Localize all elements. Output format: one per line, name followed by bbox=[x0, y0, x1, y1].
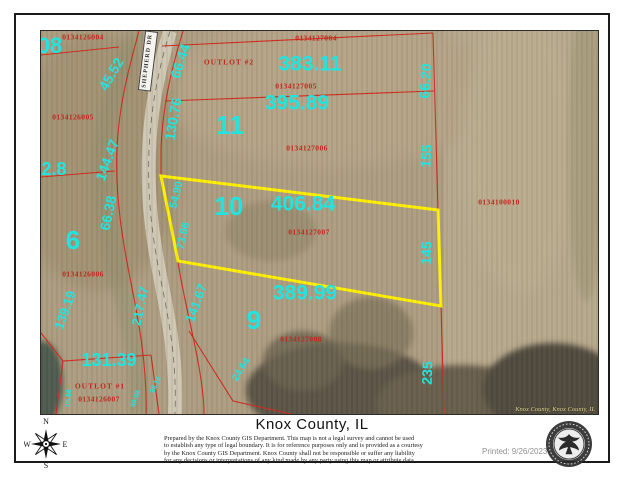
dimension-label: 389.99 bbox=[273, 283, 337, 304]
parcel-id-label: 0134126006 bbox=[62, 270, 104, 278]
dimension-label: 145 bbox=[419, 241, 434, 265]
map-label-layer: SHEPHERD DR 085111069383.11395.89406.843… bbox=[41, 31, 598, 414]
printed-map-page: SHEPHERD DR 085111069383.11395.89406.843… bbox=[0, 0, 621, 480]
parcel-id-label: 0134127005 bbox=[275, 82, 317, 90]
map-title: Knox County, IL bbox=[255, 416, 368, 433]
road-name-label: SHEPHERD DR bbox=[138, 30, 158, 91]
dimension-label: 02.8 bbox=[40, 160, 67, 178]
printed-date-label: Printed: 9/26/2023 bbox=[482, 447, 547, 456]
parcel-id-label: 0134127008 bbox=[280, 335, 322, 343]
lot-number-label: 9 bbox=[247, 307, 261, 333]
dimension-label: 383.11 bbox=[278, 54, 341, 75]
dimension-label: 144.47 bbox=[93, 137, 121, 182]
map-sheet-frame: SHEPHERD DR 085111069383.11395.89406.843… bbox=[14, 13, 610, 463]
parcel-id-label: 0134127004 bbox=[295, 34, 337, 42]
dimension-label: 73.86 bbox=[176, 221, 192, 250]
lot-number-label: 11 bbox=[216, 112, 244, 138]
dimension-label: 66.20 bbox=[417, 63, 433, 99]
parcel-id-label: 0134100010 bbox=[478, 198, 520, 206]
dimension-label: 235 bbox=[420, 361, 435, 385]
dimension-label: 40.08 bbox=[130, 390, 143, 409]
dimension-label: 141.67 bbox=[183, 282, 209, 324]
dimension-label: 05.66 bbox=[65, 389, 74, 407]
county-seal-icon bbox=[544, 419, 594, 469]
dimension-label: 406.84 bbox=[271, 194, 335, 215]
dimension-label: 45.52 bbox=[96, 55, 126, 92]
dimension-label: 66.38 bbox=[98, 194, 119, 231]
compass-s: S bbox=[44, 461, 48, 469]
compass-rose-icon: N E S W bbox=[24, 415, 68, 469]
outlot-label: OUTLOT #1 bbox=[75, 382, 125, 390]
compass-w: W bbox=[24, 440, 31, 449]
outlot-label: OUTLOT #2 bbox=[204, 58, 254, 66]
dimension-label: 54.90 bbox=[168, 180, 185, 209]
imagery-credit: Knox County, Knox County, IL bbox=[515, 406, 595, 413]
dimension-label: 395.89 bbox=[265, 93, 329, 114]
dimension-label: 130.76 bbox=[162, 97, 183, 142]
disclaimer-text: Prepared by the Knox County GIS Departme… bbox=[164, 435, 476, 464]
lot-number-label: 6 bbox=[66, 227, 80, 253]
lot-number-label: 08 bbox=[40, 35, 62, 57]
parcel-id-label: 0134126004 bbox=[62, 33, 104, 41]
disclaimer-line: for any decisions or interpretations of … bbox=[164, 457, 476, 464]
dimension-label: 139.19 bbox=[52, 289, 78, 331]
parcel-id-label: 0134126005 bbox=[52, 113, 94, 121]
disclaimer-line: by the Knox County GIS Department. Knox … bbox=[164, 450, 476, 457]
dimension-label: 24.64 bbox=[231, 357, 253, 384]
lot-number-label: 10 bbox=[215, 193, 244, 219]
dimension-label: 28.16 bbox=[149, 376, 163, 395]
dimension-label: 131.39 bbox=[81, 351, 136, 369]
parcel-id-label: 0134126007 bbox=[78, 395, 120, 403]
disclaimer-line: Prepared by the Knox County GIS Departme… bbox=[164, 435, 476, 442]
compass-n: N bbox=[43, 417, 49, 426]
disclaimer-line: to establish any type of legal boundary.… bbox=[164, 442, 476, 449]
dimension-label: 66.44 bbox=[168, 42, 192, 80]
parcel-id-label: 0134127006 bbox=[286, 144, 328, 152]
dimension-label: 217.47 bbox=[130, 285, 151, 327]
dimension-label: 155 bbox=[418, 144, 434, 168]
parcel-id-label: 0134127007 bbox=[288, 228, 330, 236]
compass-e: E bbox=[63, 440, 68, 449]
parcel-map: SHEPHERD DR 085111069383.11395.89406.843… bbox=[40, 30, 599, 415]
